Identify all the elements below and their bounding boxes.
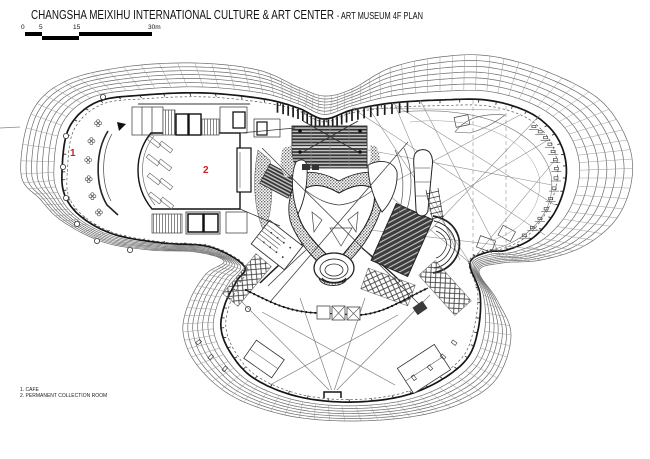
svg-text:1: 1 [70,148,76,159]
svg-text:2: 2 [203,165,209,176]
